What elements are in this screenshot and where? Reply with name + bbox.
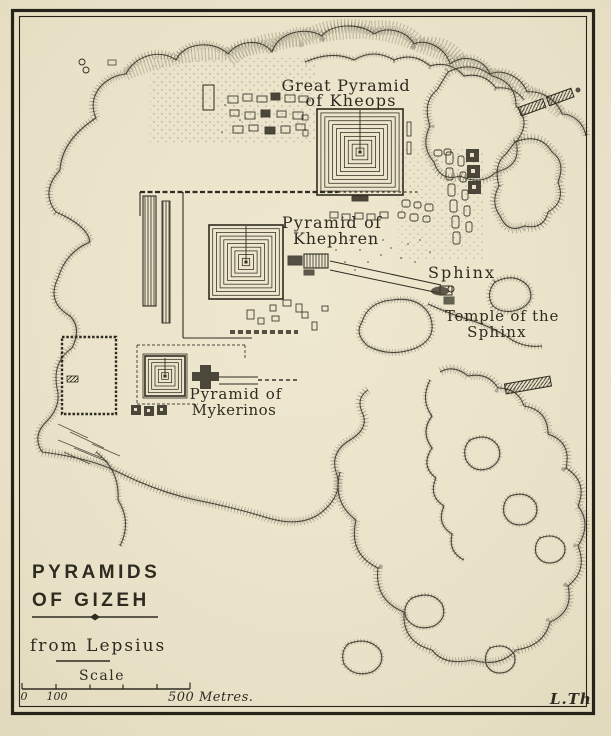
sphinx-temple [444,297,454,304]
scale-end-label: 500 Metres. [168,690,253,705]
queen-pyramids-kheops [466,149,481,194]
map-title-line2: OF GIZEH [32,590,150,611]
map-source: from Lepsius [30,636,166,656]
label-mykerinos-line2: Mykerinos [192,401,277,419]
engraved-map-pyramids-of-gizeh: Great Pyramid of Kheops Pyramid of Kheph… [0,0,611,736]
map-canvas: Great Pyramid of Kheops Pyramid of Kheph… [0,0,611,736]
mastaba-bar [143,196,156,306]
scale-start-label: 0 [21,690,28,703]
cairn-dot [576,88,581,93]
map-title-line1: PYRAMIDS [32,562,160,583]
label-khephren-line2: Khephren [293,229,379,248]
scale-heading: Scale [79,668,125,684]
label-sphinx: Sphinx [428,263,496,282]
label-great-pyramid-line2: of Kheops [305,91,396,110]
mastaba-bar [162,201,170,323]
pyramid-of-khephren [209,225,283,299]
label-temple-sphinx-line2: Sphinx [467,323,527,341]
scale-mid-label: 100 [47,690,68,703]
engraver-signature: L.Th [549,690,592,708]
queen-pyramids [131,405,167,416]
